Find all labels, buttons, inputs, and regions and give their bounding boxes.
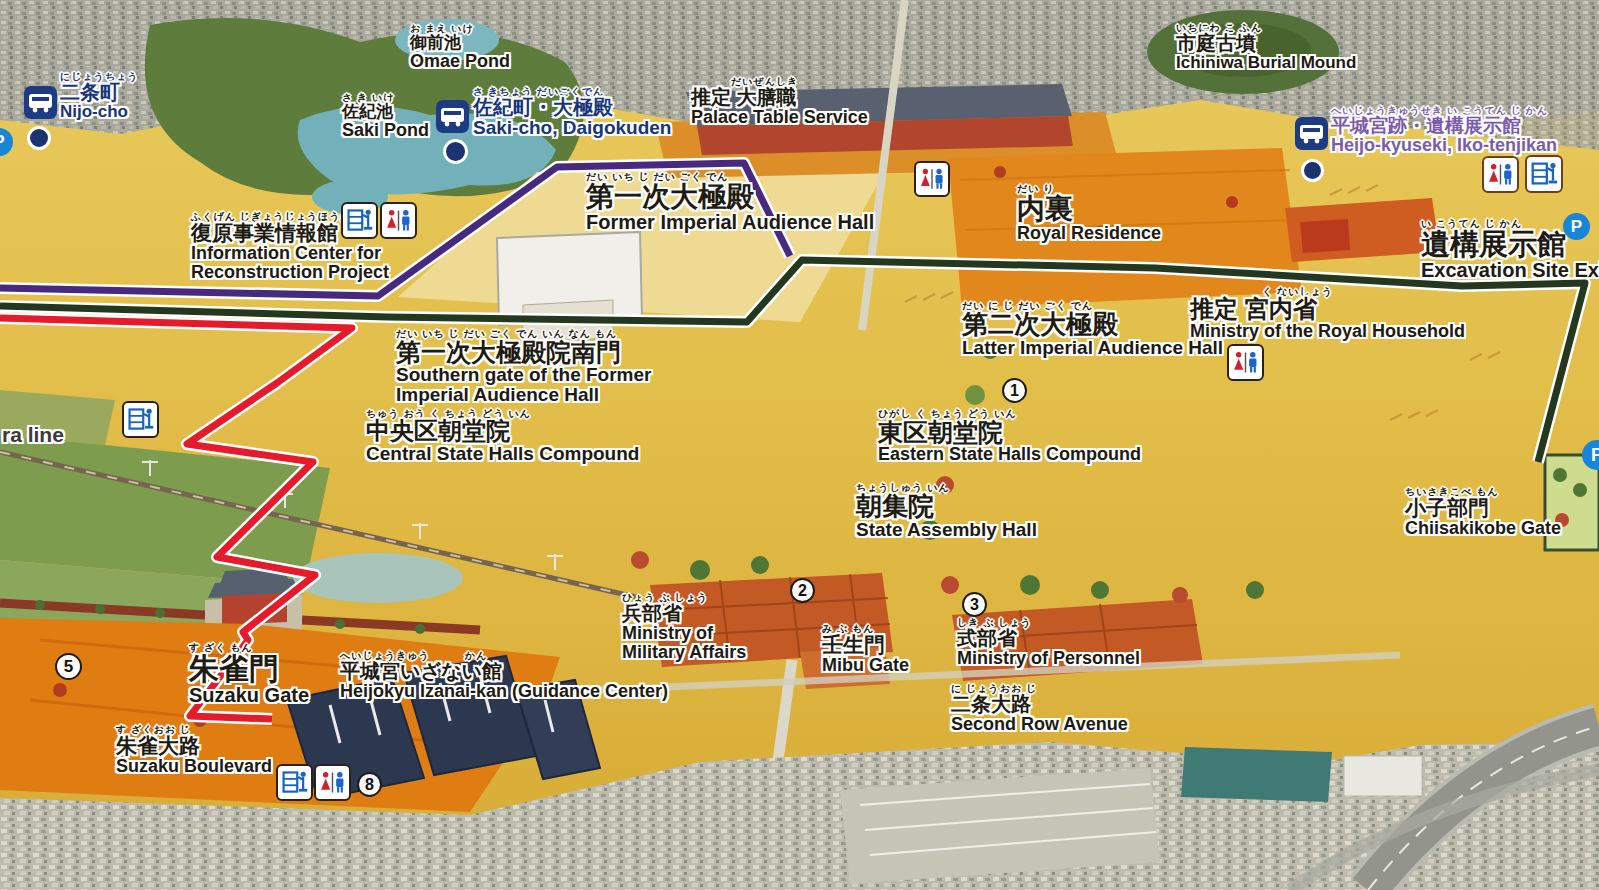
map-number-marker: 5 (55, 653, 82, 680)
label-en: State Assembly Hall (856, 520, 1037, 540)
map-label-central-state-halls: ちゅう おう く ちょう どう いん 中央区朝堂院 Central State … (366, 409, 639, 464)
toilet-icon (914, 161, 950, 197)
bus-stop-dot (1301, 159, 1324, 182)
label-en2: Reconstruction Project (191, 263, 389, 282)
label-ja: 朱雀門 (189, 653, 309, 684)
museum-icon (1525, 155, 1563, 193)
label-en: Central State Halls Compound (366, 444, 639, 464)
map-number-marker: 1 (1002, 378, 1027, 403)
map-label-ichiniwa-burial-mound: いちにわ こ ふん 市庭古墳 Ichiniwa Burial Mound (1176, 23, 1356, 72)
map-label-ministry-personnel: しき ぶ しょう 式部省 Ministry of Personnel (957, 618, 1140, 668)
label-en: Latter Imperial Audience Hall (962, 338, 1223, 358)
label-ja: 平城宮跡・遺構展示館 (1331, 116, 1557, 136)
map-number-marker: 2 (790, 578, 815, 603)
map-label-suzaku-boulevard: す ざくおお じ 朱雀大路 Suzaku Boulevard (116, 725, 272, 776)
map-label-saki-cho-daigokuden: さ きちょう だいごくでん 佐紀町・大極殿 Saki-cho, Daigokud… (473, 87, 671, 138)
map-label-nijo-cho: にじょうちょう 二条町 Nijo-cho (60, 72, 139, 121)
museum-icon (341, 202, 378, 239)
map-label-ministry-royal-household: く ないしょう 推定 宮内省 Ministry of the Royal Hou… (1190, 287, 1465, 341)
toilet-icon (1227, 344, 1264, 381)
label-ja: 推定 大膳職 (691, 87, 868, 108)
map-label-mibu-gate: み ぶ もん 壬生門 Mibu Gate (822, 624, 909, 675)
label-en: Heijokyu Izanai-kan (Guidance Center) (340, 682, 668, 701)
map-label-palace-table-service: だいぜんしき 推定 大膳職 Palace Table Service (691, 77, 868, 127)
label-en: Second Row Avenue (951, 715, 1128, 734)
label-en: Nijo-cho (60, 103, 139, 121)
label-ja: 御前池 (410, 34, 510, 52)
label-en: Former Imperial Audience Hall (586, 212, 874, 233)
map-label-suzaku-gate: す ざく もん 朱雀門 Suzaku Gate (189, 643, 309, 705)
label-en: Southern gate of the Former (396, 365, 651, 385)
map-label-chiisakikobe-gate: ちいさきこべ もん 小子部門 Chiisakikobe Gate (1405, 487, 1561, 538)
map-label-omae-pond: お まえ いけ 御前池 Omae Pond (410, 24, 510, 71)
label-ja: 二条大路 (951, 694, 1128, 715)
map-label-royal-residence: だい り 内裏 Royal Residence (1017, 184, 1161, 242)
map-label-heijo-kyuseki-bus-stop: へいじょうきゅうせき い こうてん じ かん 平城宮跡・遺構展示館 Heijo-… (1331, 106, 1557, 155)
label-en: Royal Residence (1017, 224, 1161, 243)
map-number-marker: 8 (357, 772, 382, 797)
label-ja: 第二次大極殿 (962, 311, 1223, 338)
toilet-icon (314, 764, 351, 801)
map-label-latter-audience-hall: だい に じ だい ごく でん 第二次大極殿 Latter Imperial A… (962, 301, 1223, 358)
label-ja: 小子部門 (1405, 497, 1561, 519)
label-en2: Imperial Audience Hall (396, 385, 651, 405)
toilet-icon (1482, 156, 1519, 193)
museum-icon (122, 401, 159, 438)
label-en: Saki Pond (342, 121, 429, 140)
label-ja: 第一次大極殿 (586, 182, 874, 211)
label-en: Palace Table Service (691, 108, 868, 127)
label-en: Saki-cho, Daigokuden (473, 118, 671, 138)
label-ja: 佐紀池 (342, 103, 429, 121)
label-ja: 朝集院 (856, 493, 1037, 520)
label-en: Suzaku Gate (189, 685, 309, 706)
label-en: Information Center for (191, 244, 389, 263)
label-en: Omae Pond (410, 52, 510, 71)
label-en: Mibu Gate (822, 656, 909, 675)
label-furigana2: かん (465, 651, 487, 661)
label-ja: 兵部省 (622, 603, 746, 624)
label-en: ra line (2, 424, 64, 446)
bus-icon (1295, 117, 1328, 150)
label-en: Ministry of Personnel (957, 649, 1140, 668)
bus-icon (436, 100, 469, 133)
label-ja: 内裏 (1017, 194, 1161, 223)
bus-icon (24, 86, 57, 119)
map-label-eastern-state-halls: ひがし く ちょう どう いん 東区朝堂院 Eastern State Hall… (878, 409, 1141, 464)
label-ja: 式部省 (957, 628, 1140, 649)
heijo-palace-guide-map: P P P 1 2 3 5 8 にじょうちょう 二条町 Nijo-cho お ま… (0, 0, 1599, 890)
label-ja: 中央区朝堂院 (366, 419, 639, 444)
map-label-rail-line: ra line (2, 424, 64, 446)
map-label-izanai-kan: へいじょうきゅうかん 平城宮いざない館 Heijokyu Izanai-kan … (340, 651, 668, 701)
label-en: Excavation Site Exhibit (1421, 260, 1599, 281)
map-label-southern-gate: だい いち じ だい ごく でん いん なん もん 第一次大極殿院南門 Sout… (396, 329, 651, 405)
toilet-icon (380, 202, 417, 239)
label-ja: 佐紀町・大極殿 (473, 97, 671, 118)
bus-stop-dot (443, 139, 468, 164)
map-number-marker: 3 (962, 592, 987, 617)
bus-stop-dot (27, 126, 51, 150)
label-furigana: へいじょうきゅうかん (340, 651, 668, 661)
map-label-second-row-avenue: に じょうおお じ 二条大路 Second Row Avenue (951, 684, 1128, 734)
label-en: Eastern State Halls Compound (878, 445, 1141, 464)
museum-icon (276, 764, 313, 801)
label-ja: 東区朝堂院 (878, 419, 1141, 445)
parking-icon: P (1563, 213, 1590, 240)
label-en: Ministry of (622, 624, 746, 643)
label-ja: 二条町 (60, 82, 139, 103)
map-label-former-audience-hall: だい いち じ だい ごく でん 第一次大極殿 Former Imperial … (586, 172, 874, 232)
label-ja: 推定 宮内省 (1190, 297, 1465, 322)
label-ja: 第一次大極殿院南門 (396, 339, 651, 365)
map-label-saki-pond: さ き いけ 佐紀池 Saki Pond (342, 93, 429, 140)
label-en: Ministry of the Royal Household (1190, 322, 1465, 341)
label-ja: 壬生門 (822, 634, 909, 656)
label-ja: 市庭古墳 (1176, 33, 1356, 54)
label-en: Heijo-kyuseki, Iko-tenjikan (1331, 136, 1557, 155)
map-label-state-assembly-hall: ちょうしゅう いん 朝集院 State Assembly Hall (856, 483, 1037, 540)
label-en: Ichiniwa Burial Mound (1176, 54, 1356, 72)
label-ja: 朱雀大路 (116, 735, 272, 757)
label-en: Chiisakikobe Gate (1405, 519, 1561, 538)
label-ja: 平城宮いざない館 (340, 661, 668, 682)
label-en: Suzaku Boulevard (116, 757, 272, 776)
